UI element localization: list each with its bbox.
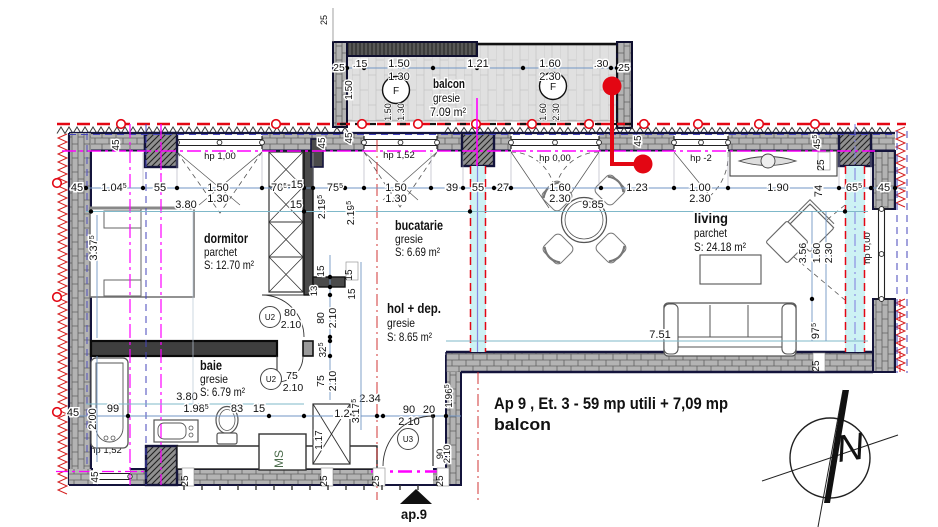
svg-text:1.17: 1.17 — [314, 430, 325, 450]
svg-text:S: 6.79 m²: S: 6.79 m² — [200, 385, 245, 399]
svg-text:2.30: 2.30 — [689, 193, 710, 205]
svg-text:dormitor: dormitor — [204, 231, 249, 246]
svg-text:parchet: parchet — [204, 245, 238, 259]
svg-text:3.80: 3.80 — [176, 391, 197, 403]
svg-text:2.10: 2.10 — [442, 445, 453, 464]
svg-text:1.60: 1.60 — [539, 58, 560, 70]
svg-text:1.21: 1.21 — [467, 58, 488, 70]
svg-text:2.30: 2.30 — [551, 103, 561, 121]
svg-text:.30: .30 — [594, 58, 609, 70]
svg-text:2.10: 2.10 — [327, 371, 339, 392]
svg-text:2.30: 2.30 — [549, 193, 570, 205]
svg-text:1.60: 1.60 — [538, 103, 548, 121]
svg-text:83: 83 — [231, 403, 243, 415]
svg-text:hp 0,00: hp 0,00 — [539, 153, 571, 164]
svg-text:13: 13 — [309, 286, 320, 297]
svg-text:45: 45 — [71, 182, 83, 194]
svg-text:1.90: 1.90 — [767, 182, 788, 194]
svg-text:hp 1,00: hp 1,00 — [204, 151, 236, 162]
svg-text:U2: U2 — [265, 313, 276, 322]
svg-text:15: 15 — [253, 403, 265, 415]
svg-text:25: 25 — [319, 475, 330, 487]
svg-text:S: 6.69 m²: S: 6.69 m² — [395, 245, 440, 259]
svg-text:45: 45 — [878, 182, 890, 194]
svg-text:80: 80 — [315, 312, 327, 324]
svg-text:1.50: 1.50 — [383, 103, 393, 121]
svg-text:S: 24.18 m²: S: 24.18 m² — [694, 240, 746, 254]
svg-text:gresie: gresie — [433, 91, 460, 105]
svg-text:45: 45 — [90, 471, 101, 483]
svg-text:U3: U3 — [403, 435, 414, 444]
svg-text:45: 45 — [633, 135, 644, 147]
svg-text:hol + dep.: hol + dep. — [387, 301, 441, 316]
svg-text:gresie: gresie — [387, 316, 415, 330]
svg-text:baie: baie — [200, 358, 222, 373]
svg-text:2.10: 2.10 — [327, 308, 339, 329]
svg-text:ap.9: ap.9 — [401, 506, 427, 522]
svg-text:75: 75 — [315, 375, 327, 387]
svg-text:15: 15 — [347, 288, 358, 300]
svg-text:25: 25 — [816, 159, 827, 171]
svg-text:39: 39 — [446, 182, 458, 194]
svg-text:bucatarie: bucatarie — [395, 218, 443, 233]
svg-text:80: 80 — [284, 307, 296, 319]
svg-text:2.30: 2.30 — [823, 243, 835, 264]
svg-text:.15: .15 — [353, 58, 368, 70]
svg-text:45: 45 — [317, 137, 328, 149]
svg-text:45: 45 — [67, 407, 79, 419]
svg-text:90: 90 — [403, 404, 415, 416]
svg-text:9.85: 9.85 — [582, 199, 603, 211]
svg-text:25: 25 — [618, 62, 630, 74]
svg-text:1.50: 1.50 — [388, 58, 409, 70]
svg-text:S: 12.70 m²: S: 12.70 m² — [204, 258, 254, 272]
svg-text:25: 25 — [811, 360, 822, 372]
svg-text:74: 74 — [813, 185, 825, 197]
svg-text:1.23: 1.23 — [626, 182, 647, 194]
svg-text:2.34: 2.34 — [359, 393, 380, 405]
svg-text:2.30: 2.30 — [539, 71, 560, 83]
svg-text:27: 27 — [497, 182, 509, 194]
svg-text:15: 15 — [344, 269, 355, 281]
svg-text:25: 25 — [333, 62, 345, 74]
svg-text:15: 15 — [316, 265, 327, 277]
svg-text:2.10: 2.10 — [281, 319, 302, 331]
svg-text:Ap 9 , Et. 3 - 59 mp utili + 7: Ap 9 , Et. 3 - 59 mp utili + 7,09 mp — [494, 394, 728, 413]
svg-text:parchet: parchet — [694, 226, 728, 240]
svg-text:45: 45 — [111, 139, 122, 151]
svg-text:S: 8.65 m²: S: 8.65 m² — [387, 330, 432, 344]
svg-text:1.60: 1.60 — [811, 243, 823, 264]
svg-text:gresie: gresie — [200, 372, 228, 386]
svg-text:25: 25 — [435, 475, 446, 487]
svg-text:2.10: 2.10 — [283, 382, 304, 394]
svg-text:99: 99 — [107, 403, 119, 415]
svg-text:hp -2: hp -2 — [690, 153, 712, 164]
svg-text:3.80: 3.80 — [175, 199, 196, 211]
svg-text:25: 25 — [180, 475, 191, 487]
svg-text:25: 25 — [319, 15, 329, 25]
svg-text:gresie: gresie — [395, 232, 423, 246]
svg-text:1.30: 1.30 — [385, 193, 406, 205]
svg-text:75: 75 — [286, 370, 298, 382]
svg-text:45: 45 — [344, 132, 355, 144]
svg-text:F: F — [550, 82, 556, 93]
svg-text:25: 25 — [371, 475, 382, 487]
svg-text:F: F — [393, 86, 399, 97]
svg-text:55: 55 — [154, 182, 166, 194]
svg-text:living: living — [694, 211, 728, 226]
svg-text:MS: MS — [272, 450, 286, 468]
svg-text:20: 20 — [423, 404, 435, 416]
svg-text:7.09 m²: 7.09 m² — [430, 105, 466, 119]
svg-text:1.50: 1.50 — [344, 80, 355, 100]
svg-text:1.30: 1.30 — [388, 71, 409, 83]
svg-text:3.56: 3.56 — [797, 243, 809, 264]
svg-text:55: 55 — [472, 182, 484, 194]
svg-text:balcon: balcon — [433, 76, 465, 91]
svg-text:balcon: balcon — [494, 415, 551, 434]
svg-text:7.51: 7.51 — [649, 329, 670, 341]
svg-text:U2: U2 — [266, 375, 277, 384]
svg-text:15: 15 — [290, 199, 302, 211]
svg-text:1.30: 1.30 — [207, 193, 228, 205]
svg-text:1.30: 1.30 — [396, 103, 406, 121]
